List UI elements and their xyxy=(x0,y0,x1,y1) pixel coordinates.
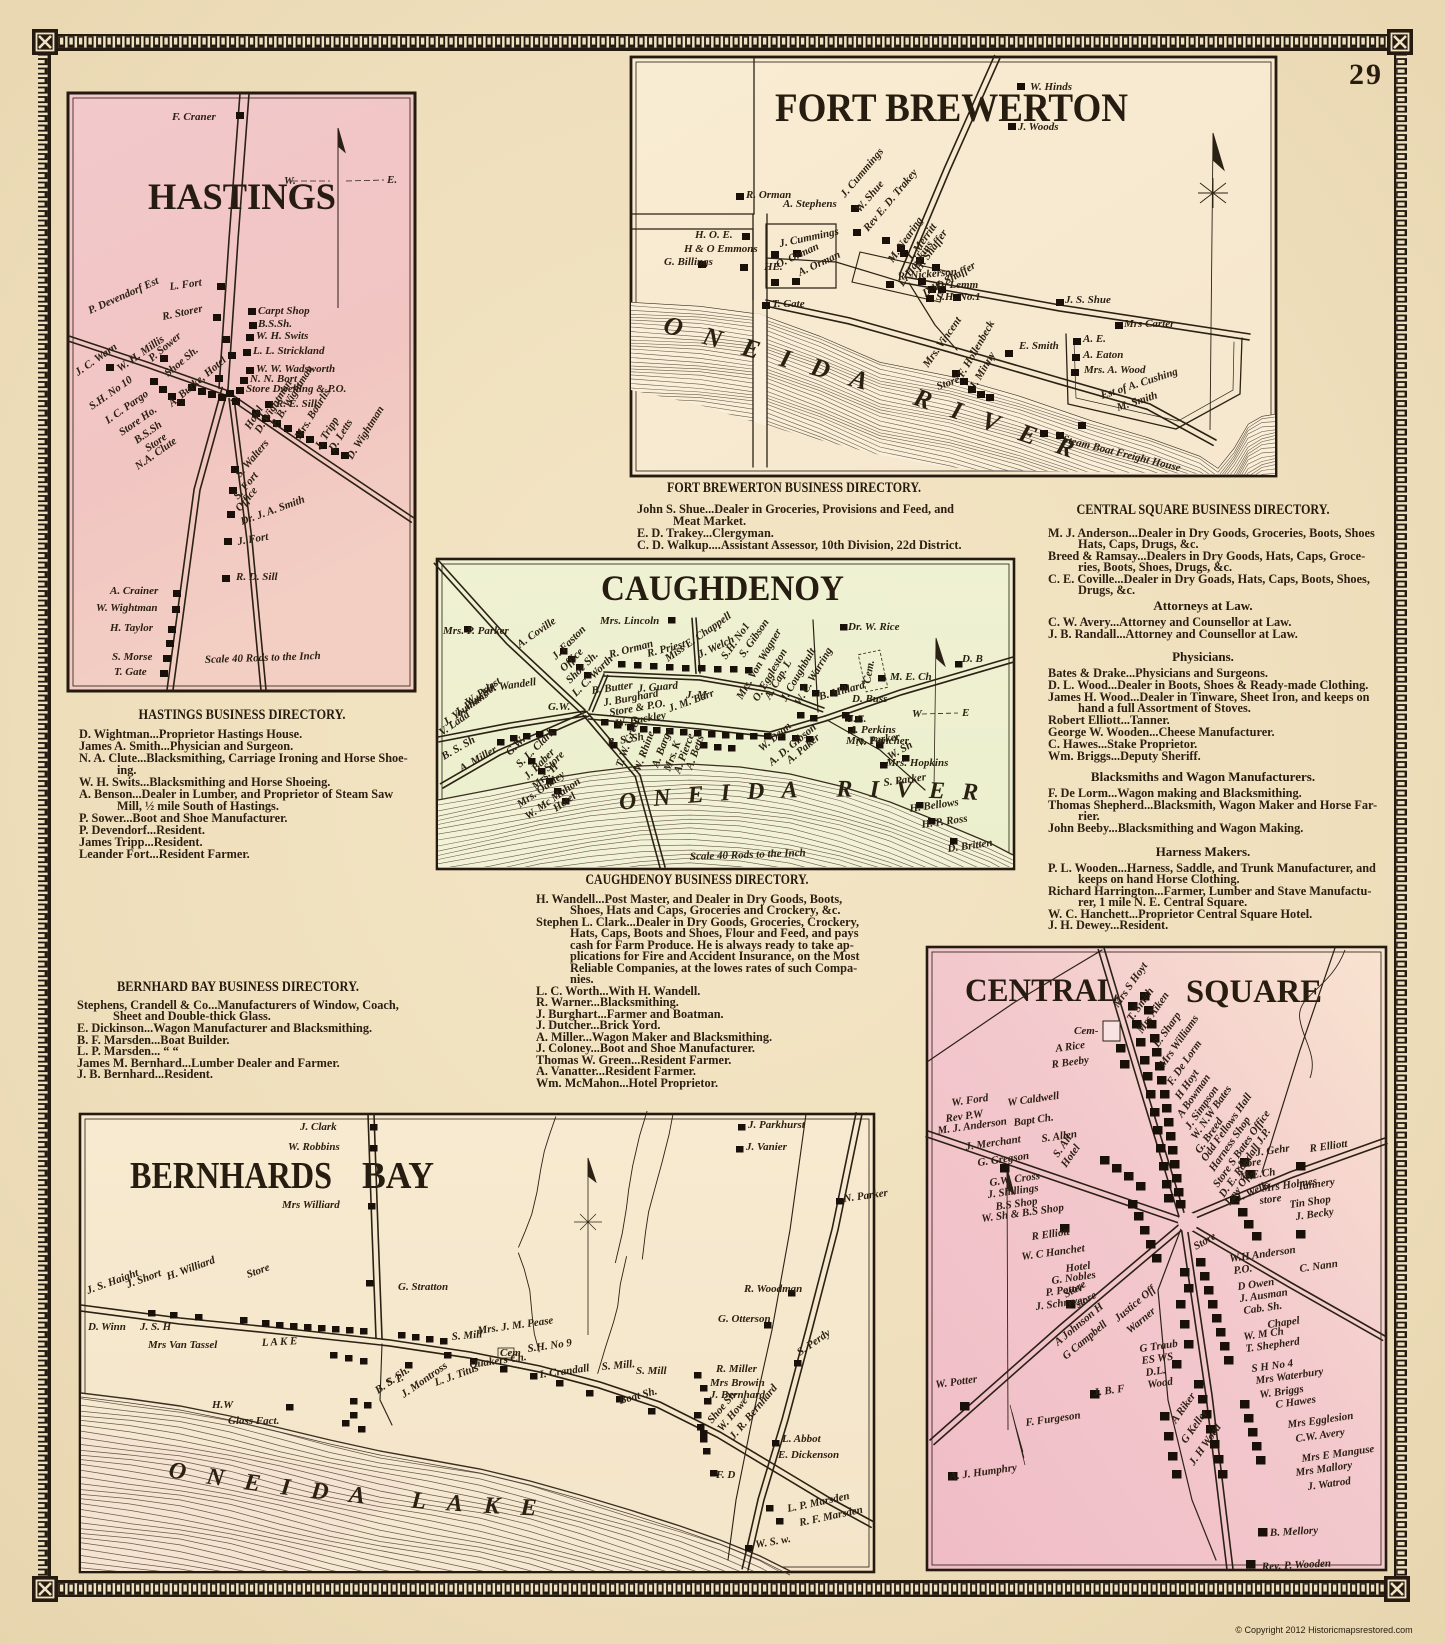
svg-text:A. Eaton: A. Eaton xyxy=(1082,349,1123,361)
svg-text:R. D. Sill: R. D. Sill xyxy=(235,571,279,583)
svg-text:M. E. Ch: M. E. Ch xyxy=(889,671,932,683)
svg-text:R. Miller: R. Miller xyxy=(715,1363,758,1375)
svg-text:A. Crainer: A. Crainer xyxy=(109,585,159,597)
svg-text:CENTRAL: CENTRAL xyxy=(965,973,1118,1009)
svg-text:E: E xyxy=(961,707,969,719)
svg-text:D. Buss: D. Buss xyxy=(851,693,887,705)
svg-text:29: 29 xyxy=(1349,58,1383,91)
svg-text:R. Woodman: R. Woodman xyxy=(743,1283,802,1295)
svg-text:C. D. Walkup....Assistant Asse: C. D. Walkup....Assistant Assessor, 10th… xyxy=(637,538,962,552)
svg-text:S. Mill: S. Mill xyxy=(636,1365,668,1377)
svg-text:J. S. Shue: J. S. Shue xyxy=(1064,294,1111,306)
svg-text:W. H. Swits: W. H. Swits xyxy=(256,330,308,342)
svg-text:Attorneys at Law.: Attorneys at Law. xyxy=(1153,598,1252,613)
svg-text:J. Vanier: J. Vanier xyxy=(745,1141,788,1153)
svg-text:F. D: F. D xyxy=(715,1469,735,1481)
svg-text:Leander Fort...Resident Farmer: Leander Fort...Resident Farmer. xyxy=(79,847,250,861)
svg-text:W. Wightman: W. Wightman xyxy=(96,602,158,614)
svg-text:S.H. No.1: S.H. No.1 xyxy=(936,291,981,303)
svg-text:D. Winn: D. Winn xyxy=(87,1321,126,1333)
svg-text:J. H. Dewey...Resident.: J. H. Dewey...Resident. xyxy=(1048,918,1168,932)
svg-text:CAUGHDENOY BUSINESS DIRECTORY.: CAUGHDENOY BUSINESS DIRECTORY. xyxy=(586,872,809,888)
svg-text:SQUARE: SQUARE xyxy=(1186,974,1322,1010)
svg-text:G. Otterson: G. Otterson xyxy=(718,1313,771,1325)
svg-text:Mrs Carter: Mrs Carter xyxy=(1123,318,1175,330)
svg-text:Carpt Shop: Carpt Shop xyxy=(258,305,310,317)
svg-text:Mrs Browin: Mrs Browin xyxy=(709,1377,765,1389)
svg-text:W. Hinds: W. Hinds xyxy=(1030,81,1072,93)
svg-text:H.W: H.W xyxy=(211,1399,234,1411)
svg-text:BERNHARD BAY BUSINESS DIRECTOR: BERNHARD BAY BUSINESS DIRECTORY. xyxy=(117,979,359,995)
svg-text:Harness Makers.: Harness Makers. xyxy=(1156,844,1251,859)
svg-text:CENTRAL SQUARE BUSINESS DIRECT: CENTRAL SQUARE BUSINESS DIRECTORY. xyxy=(1077,502,1330,518)
svg-text:Physicians.: Physicians. xyxy=(1172,649,1234,664)
svg-text:F. Craner: F. Craner xyxy=(171,111,217,123)
svg-text:L A K E: L A K E xyxy=(261,1335,298,1349)
svg-text:W. Robbins: W. Robbins xyxy=(288,1141,340,1153)
svg-text:John Beeby...Blacksmithing and: John Beeby...Blacksmithing and Wagon Mak… xyxy=(1048,821,1303,835)
svg-text:Wm. Briggs...Deputy Sheriff.: Wm. Briggs...Deputy Sheriff. xyxy=(1048,749,1201,763)
svg-text:G.W.: G.W. xyxy=(548,701,570,713)
svg-text:T. Gate: T. Gate xyxy=(114,666,147,678)
svg-text:Mrs. Lincoln: Mrs. Lincoln xyxy=(599,615,659,627)
svg-text:BAY: BAY xyxy=(362,1155,434,1197)
svg-text:D. B: D. B xyxy=(961,653,983,665)
svg-text:Mrs. A. Wood: Mrs. A. Wood xyxy=(1083,364,1146,376)
svg-text:H & O Emmons: H & O Emmons xyxy=(683,243,758,255)
svg-text:L. L. Strickland: L. L. Strickland xyxy=(252,345,325,357)
svg-text:J. B. Bernhard...Resident.: J. B. Bernhard...Resident. xyxy=(77,1067,213,1081)
svg-text:E.: E. xyxy=(386,174,397,186)
svg-text:J. B. Randall...Attorney and C: J. B. Randall...Attorney and Counsellor … xyxy=(1048,627,1298,641)
svg-text:Cem-: Cem- xyxy=(1074,1025,1099,1037)
svg-text:FORT BREWERTON BUSINESS DIRECT: FORT BREWERTON BUSINESS DIRECTORY. xyxy=(667,480,921,496)
svg-text:A. E.: A. E. xyxy=(1082,333,1106,345)
svg-text:Blacksmiths and Wagon Manufact: Blacksmiths and Wagon Manufacturers. xyxy=(1091,769,1315,784)
svg-text:J. S. H: J. S. H xyxy=(139,1321,172,1333)
svg-text:Drugs, &c.: Drugs, &c. xyxy=(1078,583,1135,597)
svg-text:J. Parkhurst: J. Parkhurst xyxy=(747,1119,806,1131)
svg-text:S. Morse: S. Morse xyxy=(112,651,152,663)
svg-text:Mrs Van Tassel: Mrs Van Tassel xyxy=(147,1339,218,1351)
svg-text:E. Smith: E. Smith xyxy=(1018,340,1059,352)
svg-text:Mrs. P. Parker: Mrs. P. Parker xyxy=(442,625,510,637)
svg-text:A. Stephens: A. Stephens xyxy=(782,198,837,210)
svg-text:E. Dickenson: E. Dickenson xyxy=(777,1449,839,1461)
svg-text:G. Stratton: G. Stratton xyxy=(398,1281,448,1293)
svg-text:Dr. W. Rice: Dr. W. Rice xyxy=(847,621,900,633)
svg-text:H. Taylor: H. Taylor xyxy=(109,622,154,634)
svg-text:J. Clark: J. Clark xyxy=(299,1121,337,1133)
svg-text:BERNHARDS: BERNHARDS xyxy=(130,1155,332,1197)
svg-text:J. Woods: J. Woods xyxy=(1017,121,1059,133)
svg-text:© Copyright 2012 Historicmapsr: © Copyright 2012 Historicmapsrestored.co… xyxy=(1235,1625,1412,1635)
svg-text:W: W xyxy=(912,708,923,720)
svg-text:T. Gate: T. Gate xyxy=(772,298,805,310)
svg-text:H. O. E.: H. O. E. xyxy=(694,229,733,241)
svg-text:G. Billings: G. Billings xyxy=(664,256,713,268)
svg-text:FORT BREWERTON: FORT BREWERTON xyxy=(775,85,1128,130)
svg-text:L. Abbot: L. Abbot xyxy=(781,1433,822,1445)
svg-text:B.S.Sh.: B.S.Sh. xyxy=(257,318,292,330)
svg-text:Mrs Williard: Mrs Williard xyxy=(281,1199,340,1211)
svg-text:Glass Fact.: Glass Fact. xyxy=(228,1415,279,1427)
svg-text:HASTINGS BUSINESS DIRECTORY.: HASTINGS BUSINESS DIRECTORY. xyxy=(139,707,346,723)
svg-text:Wm. McMahon...Hotel Proprietor: Wm. McMahon...Hotel Proprietor. xyxy=(536,1076,718,1090)
svg-text:Mrs. Hopkins: Mrs. Hopkins xyxy=(885,757,948,769)
svg-text:CAUGHDENOY: CAUGHDENOY xyxy=(601,568,844,608)
svg-text:W.: W. xyxy=(284,175,296,187)
svg-text:Reliable Companies, at the low: Reliable Companies, at the lowes rates o… xyxy=(570,961,857,975)
